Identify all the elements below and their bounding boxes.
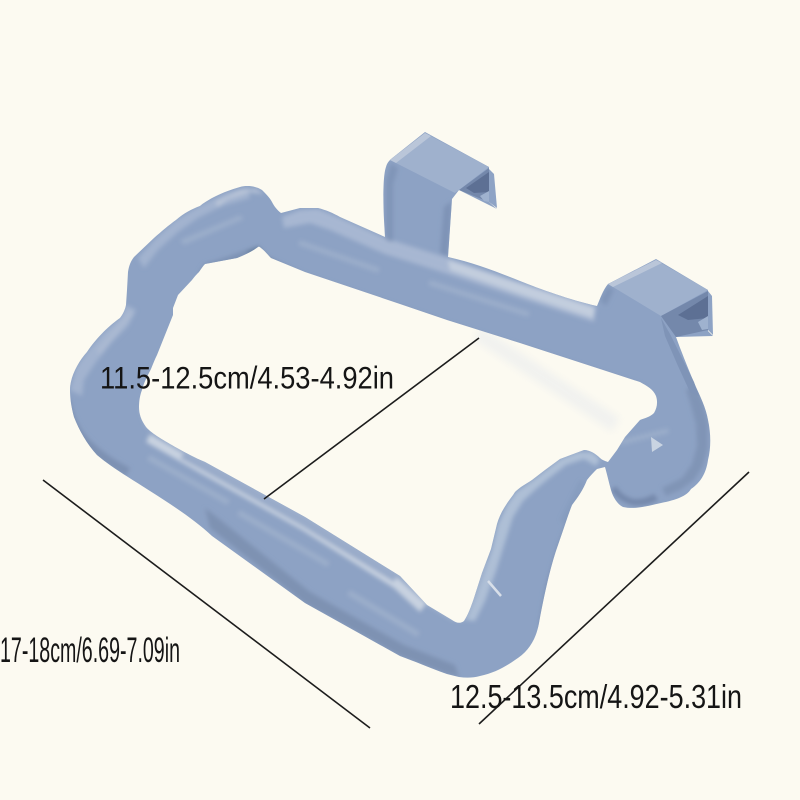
svg-text:11.5-12.5cm/4.53-4.92in: 11.5-12.5cm/4.53-4.92in [100,360,394,396]
svg-text:17-18cm/6.69-7.09in: 17-18cm/6.69-7.09in [0,631,180,670]
svg-text:12.5-13.5cm/4.92-5.31in: 12.5-13.5cm/4.92-5.31in [450,679,742,716]
